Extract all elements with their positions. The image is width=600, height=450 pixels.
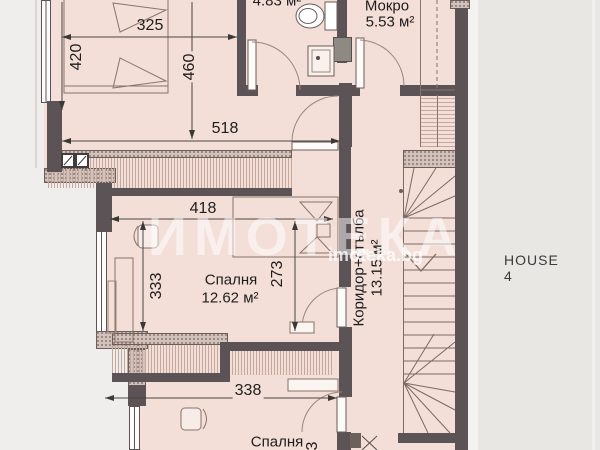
stairs-newel-dot [399, 189, 403, 193]
shaft-squares-icon [62, 154, 88, 167]
dim-333: 333 [149, 273, 165, 300]
door-arc-mokro [360, 40, 404, 86]
room-name-bedroom-bottom: Спалня [251, 435, 303, 450]
dim-420: 420 [69, 44, 85, 71]
door-arc-bathroom [252, 42, 300, 90]
dim-bottom-partial: 3 [305, 442, 321, 450]
room-area-bathroom: 4.83 м² [253, 0, 302, 9]
closet [420, 0, 455, 147]
door-arc-bedroom-top [292, 96, 338, 142]
bathroom-fixtures [296, 2, 337, 76]
door-leaf-bottom-room [337, 397, 346, 432]
dresser-icon-bottom-room [288, 379, 338, 391]
dim-460: 460 [182, 52, 198, 83]
room-area-bedroom-mid: 12.62 м² [201, 291, 258, 306]
cabinet-icon-corridor [290, 322, 314, 333]
dim-338: 338 [233, 383, 264, 399]
washbasin-icon [350, 433, 377, 450]
room-area-mokro: 5.53 м² [366, 15, 415, 30]
watermark-small: imoteka.bg [328, 245, 423, 266]
door-leaf-bedroom-side [337, 288, 346, 327]
dim-518: 518 [212, 121, 239, 137]
dim-325: 325 [137, 18, 164, 34]
shower-drain-icon [316, 56, 320, 60]
room-name-mokro: Мокро [365, 0, 409, 14]
door-leaf-bathroom [248, 40, 256, 90]
chair-icon-bottom-room [181, 408, 207, 430]
desk-icon [115, 258, 133, 342]
toilet-tank-icon [325, 2, 337, 30]
floor-plan: 325 420 460 518 418 333 273 338 3 4.83 м… [0, 0, 600, 450]
house-label: HOUSE 4 [504, 252, 568, 284]
room-name-bedroom-mid: Спалня [205, 273, 257, 288]
door-leaf-bedroom-top [292, 142, 338, 150]
door-leaf-mokro [356, 38, 364, 88]
